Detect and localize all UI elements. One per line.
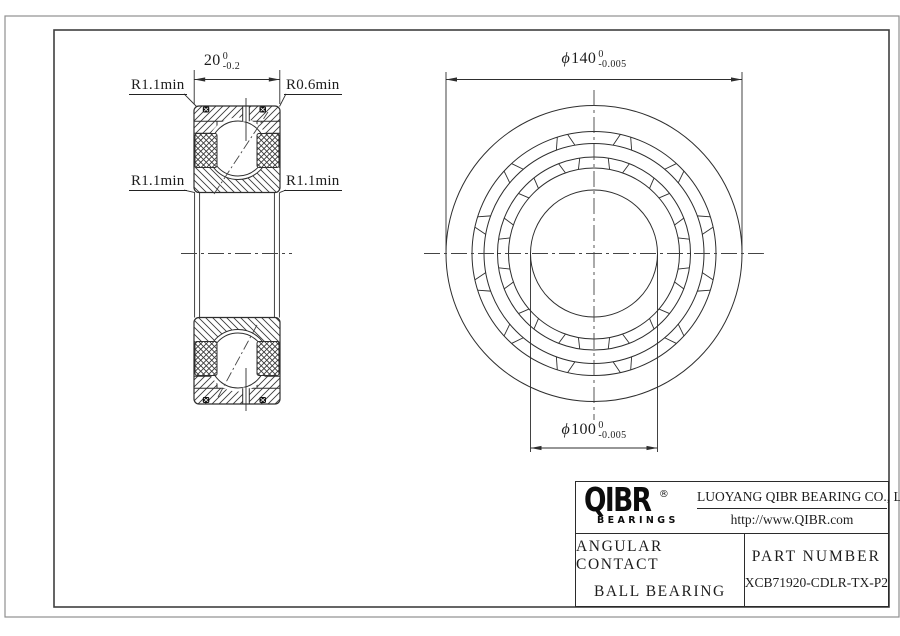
dim-bore-diameter: ϕ 100 0 -0.005 — [534, 421, 654, 441]
dim-width-value: 20 — [204, 52, 221, 70]
logo-wordmark: QIBR® — [584, 484, 696, 516]
tolerance-lower: -0.005 — [598, 60, 626, 70]
dim-section-width: 20 0 -0.2 — [178, 52, 266, 72]
radius-label-top-right: R0.6min — [284, 78, 342, 95]
radius-label-mid-left: R1.1min — [129, 174, 187, 191]
tolerance-lower: -0.005 — [598, 431, 626, 441]
registered-trademark-symbol: ® — [659, 489, 669, 500]
dim-outer-value: 140 — [571, 50, 596, 68]
title-block-detail-row: ANGULAR CONTACT BALL BEARING PART NUMBER… — [576, 533, 888, 606]
company-website: http://www.QIBR.com — [697, 509, 887, 530]
company-info: LUOYANG QIBR BEARING CO., LTD http://www… — [697, 482, 887, 533]
dim-bore-tolerance: 0 -0.005 — [598, 421, 626, 441]
part-number-value: XCB71920-CDLR-TX-P2 — [745, 575, 888, 591]
diameter-symbol: ϕ — [561, 421, 570, 439]
title-block-header-row: QIBR® BEARINGS LUOYANG QIBR BEARING CO.,… — [576, 482, 888, 534]
title-block: QIBR® BEARINGS LUOYANG QIBR BEARING CO.,… — [575, 481, 889, 607]
diameter-symbol: ϕ — [561, 50, 570, 68]
dim-outer-tolerance: 0 -0.005 — [598, 50, 626, 70]
company-logo: QIBR® BEARINGS — [584, 484, 696, 526]
drawing-sheet: 20 0 -0.2 R1.1min R0.6min R1.1min R1.1mi… — [0, 0, 900, 636]
company-name: LUOYANG QIBR BEARING CO., LTD — [697, 482, 887, 509]
dim-width-tolerance: 0 -0.2 — [223, 52, 240, 72]
product-type-line2: BALL BEARING — [594, 583, 726, 601]
part-number-label: PART NUMBER — [752, 548, 881, 566]
product-type-cell: ANGULAR CONTACT BALL BEARING — [576, 533, 745, 606]
brand-text: QIBR — [584, 484, 650, 515]
dim-outer-diameter: ϕ 140 0 -0.005 — [534, 50, 654, 70]
part-number-cell: PART NUMBER XCB71920-CDLR-TX-P2 — [745, 533, 888, 606]
radius-label-top-left: R1.1min — [129, 78, 187, 95]
product-type-line1: ANGULAR CONTACT — [576, 538, 744, 574]
radius-label-mid-right: R1.1min — [284, 174, 342, 191]
tolerance-lower: -0.2 — [223, 62, 240, 72]
dim-bore-value: 100 — [571, 421, 596, 439]
